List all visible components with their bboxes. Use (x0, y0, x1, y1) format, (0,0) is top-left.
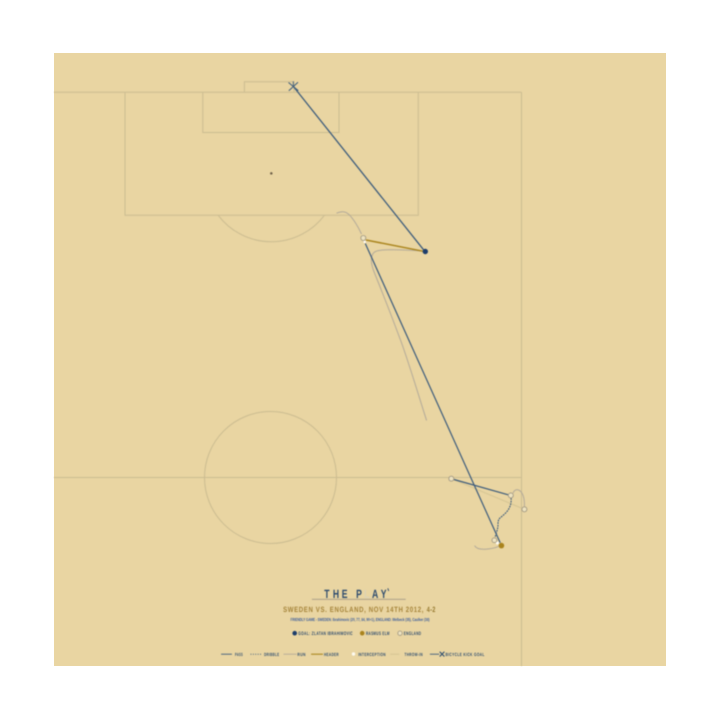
svg-text:RUN: RUN (297, 652, 306, 657)
svg-text:FRIENDLY GAME - SWEDEN: Ibrahi: FRIENDLY GAME - SWEDEN: Ibrahimovic (20,… (291, 617, 430, 622)
svg-text:SWEDEN VS. ENGLAND, NOV 14TH 2: SWEDEN VS. ENGLAND, NOV 14TH 2012, (283, 605, 424, 614)
svg-text:RASMUS ELM: RASMUS ELM (366, 631, 390, 637)
svg-text:T: T (324, 587, 330, 601)
svg-text:GOAL: ZLATAN IBRAHIMOVIC: GOAL: ZLATAN IBRAHIMOVIC (298, 631, 353, 637)
svg-text:H: H (333, 587, 339, 601)
svg-text:ENGLAND: ENGLAND (404, 631, 422, 637)
svg-text:4-2: 4-2 (427, 605, 436, 614)
svg-text:INTERCEPTION: INTERCEPTION (358, 652, 386, 657)
svg-text:THROW-IN: THROW-IN (405, 652, 424, 657)
svg-text:DRIBBLE: DRIBBLE (264, 652, 279, 657)
svg-text:L: L (364, 587, 369, 601)
svg-text:BICYCLE KICK GOAL: BICYCLE KICK GOAL (446, 652, 485, 657)
svg-text:P: P (356, 587, 362, 601)
svg-text:PASS: PASS (235, 652, 243, 657)
svg-text:HEADER: HEADER (324, 652, 339, 657)
svg-text:Y: Y (381, 587, 387, 601)
svg-text:E: E (342, 587, 348, 601)
svg-text:A: A (372, 587, 378, 601)
